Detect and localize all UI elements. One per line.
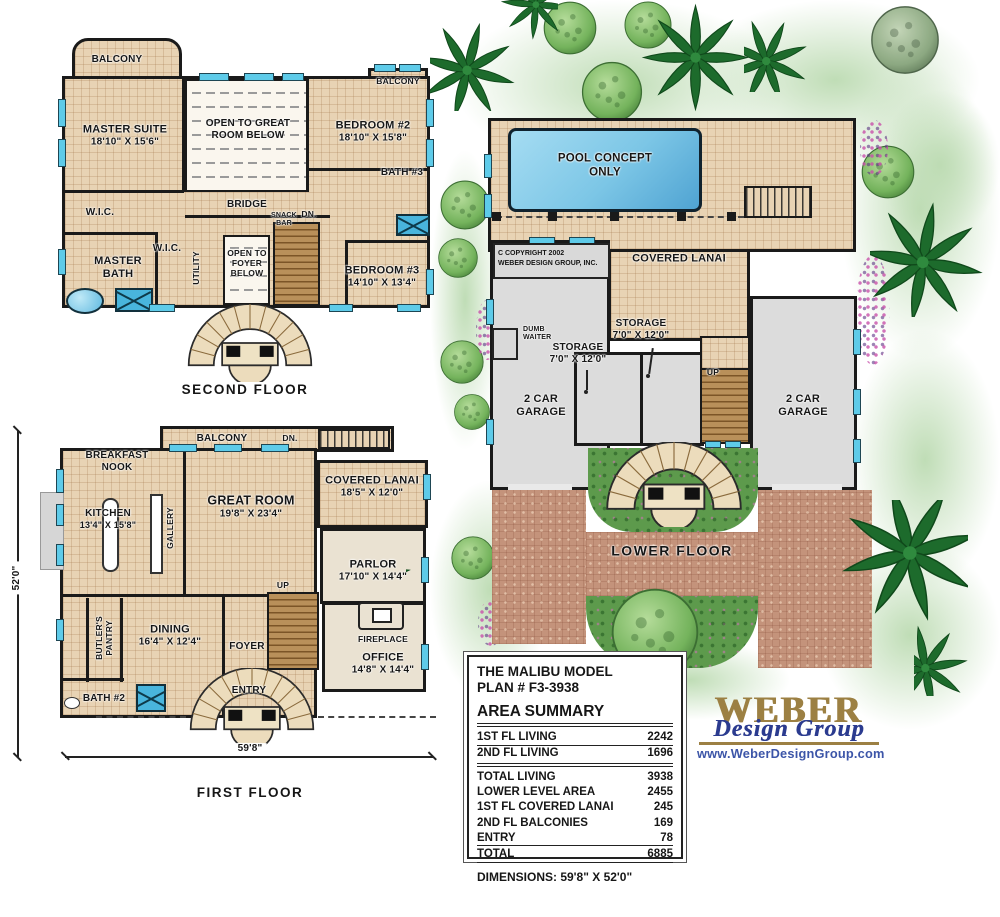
entry-fan-stair <box>598 442 750 527</box>
window-marker <box>262 445 288 451</box>
window-marker <box>427 270 433 294</box>
area-row-total: TOTAL6885 <box>477 846 673 862</box>
rule-double <box>477 723 673 728</box>
leader-line <box>586 370 588 390</box>
logo-subbrand-text: Design Group <box>697 717 881 741</box>
window-marker <box>398 305 420 311</box>
bush <box>453 393 491 431</box>
garage-door-opening <box>508 484 572 490</box>
ff-dining-label: DINING16'4" X 12'4" <box>139 624 201 649</box>
window-marker <box>375 65 395 71</box>
bush <box>580 60 644 124</box>
sf-snack-bar-label: SNACK BAR <box>268 212 300 229</box>
floor-plan-sheet: POOL CONCEPT ONLY COVERED LANAI C COPYRI… <box>0 0 1000 917</box>
bush <box>439 179 491 231</box>
palm-tree <box>744 0 836 92</box>
area-row: TOTAL LIVING3938 <box>477 769 673 784</box>
lower-up-label: UP <box>707 367 719 377</box>
wall-segment <box>62 190 184 193</box>
ff-parlor-label: PARLOR17'10" X 14'4" <box>339 559 407 584</box>
window-marker <box>487 420 493 444</box>
dumb-waiter-box <box>492 328 518 360</box>
area-row: 2ND FL LIVING1696 <box>477 746 673 761</box>
window-marker <box>245 74 273 80</box>
ff-width-dim: 59'8" <box>234 743 267 755</box>
second-floor-title: SECOND FLOOR <box>182 382 309 398</box>
sf-master-bath-label: MASTER BATH <box>88 255 148 281</box>
lower-floor-title: LOWER FLOOR <box>611 543 733 560</box>
logo-rule <box>699 742 879 745</box>
leader-dot <box>646 374 650 378</box>
ff-bath2-label: BATH #2 <box>83 693 125 705</box>
window-marker <box>150 305 174 311</box>
window-marker <box>854 440 860 462</box>
palm-tree <box>870 187 1000 317</box>
window-marker <box>200 74 228 80</box>
copyright-line1: C COPYRIGHT 2002 <box>498 249 605 259</box>
ff-balcony-stairs <box>318 429 390 449</box>
sf-master-suite-label: MASTER SUITE18'10" X 15'6" <box>83 124 167 149</box>
ff-entry-label: ENTRY <box>232 685 267 697</box>
copyright-box: C COPYRIGHT 2002 WEBER DESIGN GROUP, INC… <box>493 243 610 279</box>
window-marker <box>422 645 428 669</box>
sf-bedroom2-label: BEDROOM #218'10" X 15'8" <box>336 120 411 145</box>
window-marker <box>57 470 63 492</box>
dim-line-bottom <box>65 756 433 758</box>
lanai-edge-dashed <box>496 216 744 218</box>
shower-icon <box>396 214 430 236</box>
deck-stairs <box>744 186 812 218</box>
shower-icon <box>136 684 166 712</box>
sf-balcony-left-label: BALCONY <box>92 54 143 66</box>
dumb-waiter-label: DUMB WAITER <box>523 326 567 343</box>
flower-bed <box>860 120 888 176</box>
sf-wic-left-label: W.I.C. <box>86 207 114 219</box>
fireplace-inner <box>372 608 392 623</box>
lower-lanai-label: COVERED LANAI <box>632 253 726 266</box>
column-post <box>610 212 619 221</box>
toilet-icon <box>64 697 80 709</box>
window-marker <box>485 155 491 177</box>
window-marker <box>427 140 433 166</box>
sf-open-great-label: OPEN TO GREAT ROOM BELOW <box>203 118 293 142</box>
wall-segment <box>345 240 430 243</box>
overall-dimensions: DIMENSIONS: 59'8" X 52'0" <box>477 870 673 884</box>
plan-info-box: THE MALIBU MODEL PLAN # F3-3938 AREA SUM… <box>463 651 687 863</box>
window-marker <box>59 100 65 126</box>
window-marker <box>427 100 433 126</box>
lower-stairs <box>700 368 750 444</box>
copyright-line2: WEBER DESIGN GROUP, INC. <box>498 259 605 269</box>
wall-segment <box>86 598 89 682</box>
ff-gallery-label: GALLERY <box>165 507 175 549</box>
ff-great-room-label: GREAT ROOM19'8" X 23'4" <box>207 494 294 521</box>
sf-dn-label: DN. <box>301 209 316 219</box>
garage-right-label: 2 CAR GARAGE <box>772 393 834 419</box>
window-marker <box>283 74 303 80</box>
sf-utility-label: UTILITY <box>191 251 201 285</box>
window-marker <box>330 305 352 311</box>
window-marker <box>854 330 860 354</box>
area-row: 1ST FL LIVING2242 <box>477 729 673 745</box>
area-row: 1ST FL COVERED LANAI245 <box>477 800 673 815</box>
wall-segment <box>120 598 123 682</box>
model-name: THE MALIBU MODEL <box>477 664 673 680</box>
ff-foyer-label: FOYER <box>229 641 264 653</box>
window-marker <box>400 65 420 71</box>
driveway-left <box>492 490 586 644</box>
area-row: LOWER LEVEL AREA2455 <box>477 785 673 800</box>
window-marker <box>57 505 63 525</box>
ff-kitchen-label: KITCHEN13'4" X 15'8" <box>80 508 136 530</box>
sf-bridge-label: BRIDGE <box>227 199 267 211</box>
column-post <box>492 212 501 221</box>
wall-segment <box>640 352 643 446</box>
bush <box>869 4 941 76</box>
sf-stairs <box>273 222 320 306</box>
wall-segment <box>62 232 155 235</box>
plan-number: PLAN # F3-3938 <box>477 680 673 696</box>
storage-a-label: STORAGE7'0" X 12'0" <box>613 318 670 342</box>
bush <box>437 237 479 279</box>
palm-tree <box>638 0 753 115</box>
window-marker <box>57 545 63 565</box>
wall-segment <box>182 76 185 192</box>
ff-butlers-pantry-label: BUTLER'S PANTRY <box>94 610 114 666</box>
window-marker <box>57 620 63 640</box>
column-post <box>548 212 557 221</box>
window-marker <box>854 390 860 414</box>
window-marker <box>424 475 430 499</box>
sf-balcony-right-label: BALCONY <box>376 76 419 86</box>
palm-tree <box>483 0 558 75</box>
ff-up-label: UP <box>277 580 289 590</box>
area-summary-heading: AREA SUMMARY <box>477 703 673 721</box>
palm-tree <box>406 526 494 614</box>
sf-bedroom3-label: BEDROOM #314'10" X 13'4" <box>345 265 420 290</box>
palm-tree <box>914 604 1000 696</box>
storage-rooms <box>574 352 704 446</box>
window-marker <box>487 300 493 324</box>
weber-logo: WEBER Design Group www.WeberDesignGroup.… <box>697 692 881 761</box>
window-marker <box>59 250 65 274</box>
window-marker <box>170 445 196 451</box>
sf-fan-stair <box>180 304 320 382</box>
window-marker <box>485 195 491 217</box>
ff-balcony-dn-label: DN. <box>282 433 297 443</box>
plan-info-inner: THE MALIBU MODEL PLAN # F3-3938 AREA SUM… <box>467 655 683 859</box>
ff-stairs <box>267 592 319 670</box>
column-post <box>677 212 686 221</box>
stair-landing <box>700 336 750 370</box>
ff-lanai-label: COVERED LANAI18'5" X 12'0" <box>325 475 419 500</box>
sf-bath3-label: BATH #3 <box>381 167 423 179</box>
bathtub-icon <box>66 288 104 314</box>
gallery-cabinet <box>150 494 163 574</box>
logo-website: www.WeberDesignGroup.com <box>697 746 881 761</box>
setback-dashed <box>96 716 186 718</box>
shower-icon <box>115 288 153 312</box>
ff-height-dim: 52'0" <box>11 562 23 595</box>
setback-dashed <box>318 716 436 718</box>
pool-label: POOL CONCEPT ONLY <box>549 152 661 179</box>
first-floor-title: FIRST FLOOR <box>197 785 304 801</box>
rule-double <box>477 763 673 768</box>
wall-segment <box>306 76 309 192</box>
wall-segment <box>183 448 186 596</box>
area-row: ENTRY78 <box>477 830 673 846</box>
ff-balcony-label: BALCONY <box>197 433 248 445</box>
ff-fan-stair <box>182 668 322 746</box>
sf-open-foyer-label: OPEN TO FOYER BELOW <box>223 248 271 278</box>
garage-door-opening <box>772 484 842 490</box>
storage-b-label: STORAGE7'0" X 12'0" <box>550 342 607 366</box>
leader-dot <box>584 390 588 394</box>
window-marker <box>59 140 65 166</box>
ff-breakfast-nook-label: BREAKFAST NOOK <box>78 450 156 474</box>
ff-fireplace-label: FIREPLACE <box>358 634 408 644</box>
window-marker <box>215 445 241 451</box>
column-post <box>727 212 736 221</box>
garage-left-label: 2 CAR GARAGE <box>510 393 572 419</box>
area-row: 2ND FL BALCONIES169 <box>477 815 673 830</box>
sf-wic-right-label: W.I.C. <box>153 243 181 255</box>
ff-office-label: OFFICE14'8" X 14'4" <box>352 652 414 677</box>
wall-segment <box>60 678 124 681</box>
